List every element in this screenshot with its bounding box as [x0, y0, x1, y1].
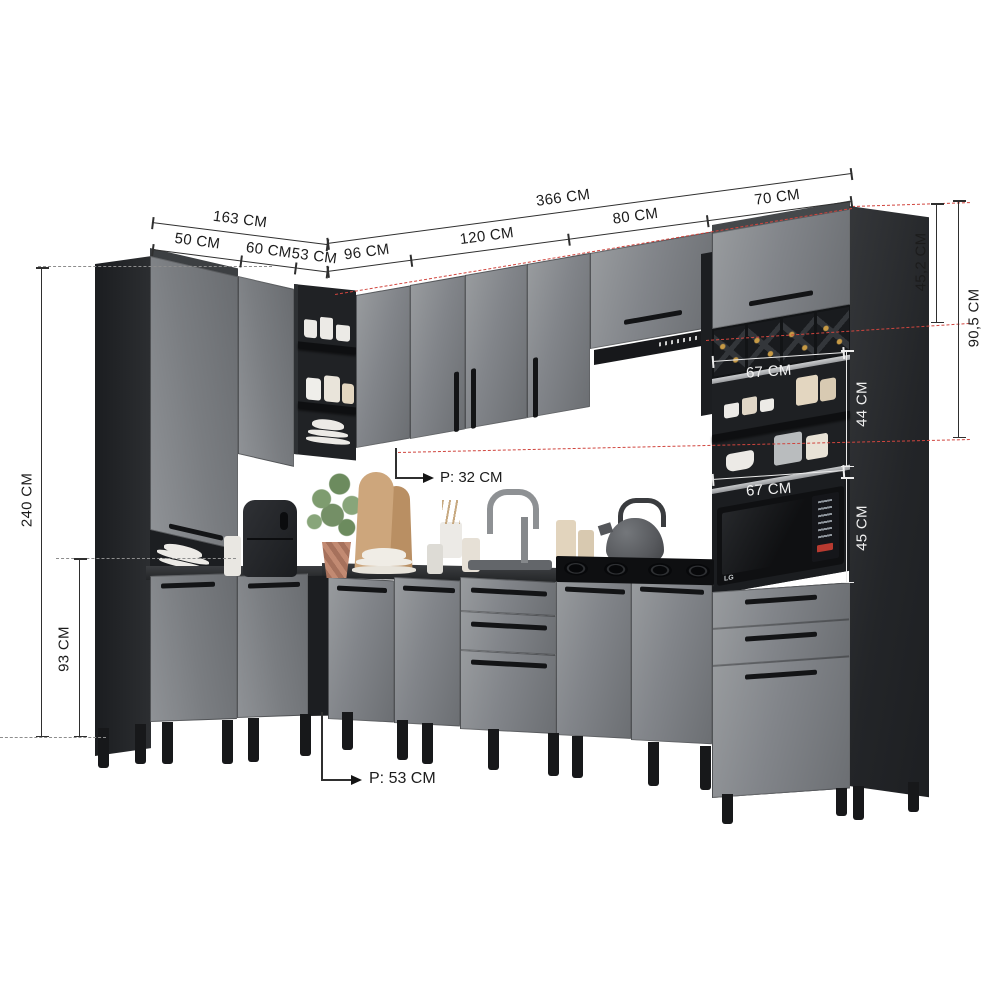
faucet-arc — [487, 489, 539, 529]
dim-right-upper-total — [958, 200, 959, 438]
base-door — [712, 656, 850, 798]
door-handle — [161, 582, 215, 589]
cabinet-leg — [135, 724, 146, 764]
mug — [304, 319, 317, 338]
mug — [336, 324, 350, 341]
door-handle — [533, 357, 538, 418]
drawer-handle — [745, 632, 817, 642]
cabinet-leg — [397, 720, 408, 760]
dim-right-top-door — [936, 203, 937, 323]
plate-stack — [352, 566, 416, 574]
canister — [774, 431, 802, 466]
tall-cabinet-side-panel — [95, 256, 151, 756]
corner-base-filler — [308, 576, 330, 716]
base-cabinet-door — [237, 574, 308, 718]
cabinet-leg — [162, 722, 173, 764]
wall-cabinet-door — [465, 264, 527, 429]
tall-unit-upper: LG — [712, 209, 850, 595]
air-fryer — [243, 500, 297, 577]
microwave-control-panel — [812, 492, 839, 563]
mug — [760, 398, 774, 412]
drawer — [460, 611, 556, 655]
door-handle — [749, 290, 813, 306]
mug — [320, 317, 333, 340]
arrow-right-icon — [423, 473, 434, 483]
depth-base-callout-vline — [321, 712, 323, 780]
dim-height-base — [79, 558, 80, 737]
microwave-brand-logo: LG — [724, 574, 734, 583]
utensil-crock — [440, 522, 462, 558]
cabinet-leg — [422, 723, 433, 764]
dim-height-base-label: 93 CM — [56, 626, 73, 672]
jar — [324, 375, 340, 403]
projection-line-wall-top-ext — [852, 202, 970, 207]
tall-unit-right-side-panel — [849, 206, 929, 797]
cabinet-leg — [722, 794, 733, 824]
air-fryer-seam — [247, 538, 293, 540]
drawer-handle — [471, 622, 547, 631]
mug — [742, 396, 757, 416]
cabinet-leg — [488, 729, 499, 770]
dim-open-shelf-height — [846, 350, 847, 467]
dim-height-total — [41, 267, 42, 737]
base-cabinet-door — [328, 577, 394, 722]
jar — [342, 383, 354, 404]
cabinet-leg — [700, 746, 711, 790]
utensils — [442, 500, 460, 524]
cabinet-leg — [248, 718, 259, 762]
drawer — [460, 577, 556, 616]
cabinet-leg — [98, 728, 109, 768]
sink — [468, 560, 552, 570]
bowl — [362, 548, 406, 560]
door-handle — [471, 368, 476, 429]
pot — [726, 450, 754, 473]
drawer-handle — [471, 660, 547, 669]
door-handle — [337, 585, 387, 593]
door-handle — [624, 310, 682, 325]
door-handle — [640, 586, 704, 594]
microwave-window — [722, 498, 808, 575]
microwave-start-button — [817, 543, 833, 553]
dim-height-total-label: 240 CM — [19, 473, 36, 527]
cabinet-leg — [342, 712, 353, 750]
cabinet-leg — [908, 782, 919, 812]
jar — [427, 544, 443, 574]
base-cabinet-door — [556, 577, 631, 739]
door-handle — [565, 586, 625, 594]
dim-microwave-niche-height — [846, 477, 847, 583]
drawer-handle — [471, 588, 547, 597]
jar — [306, 377, 321, 401]
dim-microwave-niche-height-label: 45 CM — [854, 505, 871, 551]
air-fryer-dial — [280, 512, 288, 530]
faucet-stem — [521, 517, 528, 563]
cabinet-leg — [836, 788, 847, 816]
base-cabinet-door — [150, 573, 237, 722]
jar — [820, 377, 836, 402]
door-handle — [248, 582, 300, 589]
depth-base-callout-hline — [321, 779, 351, 781]
cabinet-leg — [300, 714, 311, 756]
dim-right-upper-total-label: 90,5 CM — [966, 289, 983, 348]
wine-rack-cell — [714, 325, 746, 377]
drawer — [460, 650, 556, 734]
cabinet-leg — [648, 742, 659, 786]
candle-jar — [224, 536, 241, 576]
cooktop-burner — [564, 561, 588, 576]
depth-wall-label: P: 32 CM — [440, 469, 503, 486]
base-cabinet-door — [631, 577, 712, 744]
guide-line-floor — [0, 737, 106, 738]
drawer-handle — [745, 595, 817, 605]
microwave: LG — [717, 486, 844, 586]
base-drawer-stack — [460, 577, 556, 734]
faucet-spout — [487, 521, 493, 534]
door-handle — [454, 371, 459, 432]
guide-line-top — [38, 266, 272, 267]
dim-open-shelf-height-label: 44 CM — [854, 381, 871, 427]
cooktop-burner — [604, 562, 628, 577]
tall-unit-base — [712, 582, 850, 798]
mug — [724, 402, 739, 419]
cooktop-burner — [686, 564, 710, 579]
arrow-right-icon — [351, 775, 362, 785]
depth-wall-callout-hline — [395, 477, 423, 479]
door-handle — [403, 585, 455, 593]
canister — [806, 433, 828, 461]
corner-wall-cabinet-door — [238, 276, 294, 467]
cabinet-gap-panel — [701, 252, 712, 416]
kitchen-product-diagram: LG — [0, 0, 1000, 1000]
jar — [796, 374, 818, 406]
depth-base-label: P: 53 CM — [369, 770, 436, 788]
microwave-buttons — [818, 499, 832, 541]
cooktop-burner — [648, 563, 672, 578]
wall-cabinet-door — [527, 253, 590, 418]
wall-cabinet-corner-front — [356, 285, 410, 448]
wall-cabinet-door — [410, 275, 465, 439]
door-handle — [745, 670, 817, 680]
dim-right-top-door-label: 45,2 CM — [913, 233, 930, 292]
cabinet-leg — [222, 720, 233, 764]
corner-open-shelf-unit — [294, 284, 356, 461]
depth-wall-callout-vline — [395, 448, 397, 478]
base-cabinet-door — [394, 577, 460, 726]
cooktop — [556, 556, 714, 585]
cabinet-leg — [572, 736, 583, 778]
tall-cabinet-door — [150, 256, 238, 550]
cabinet-leg — [548, 733, 559, 776]
hood-buttons — [659, 334, 705, 346]
cabinet-leg — [853, 786, 864, 820]
